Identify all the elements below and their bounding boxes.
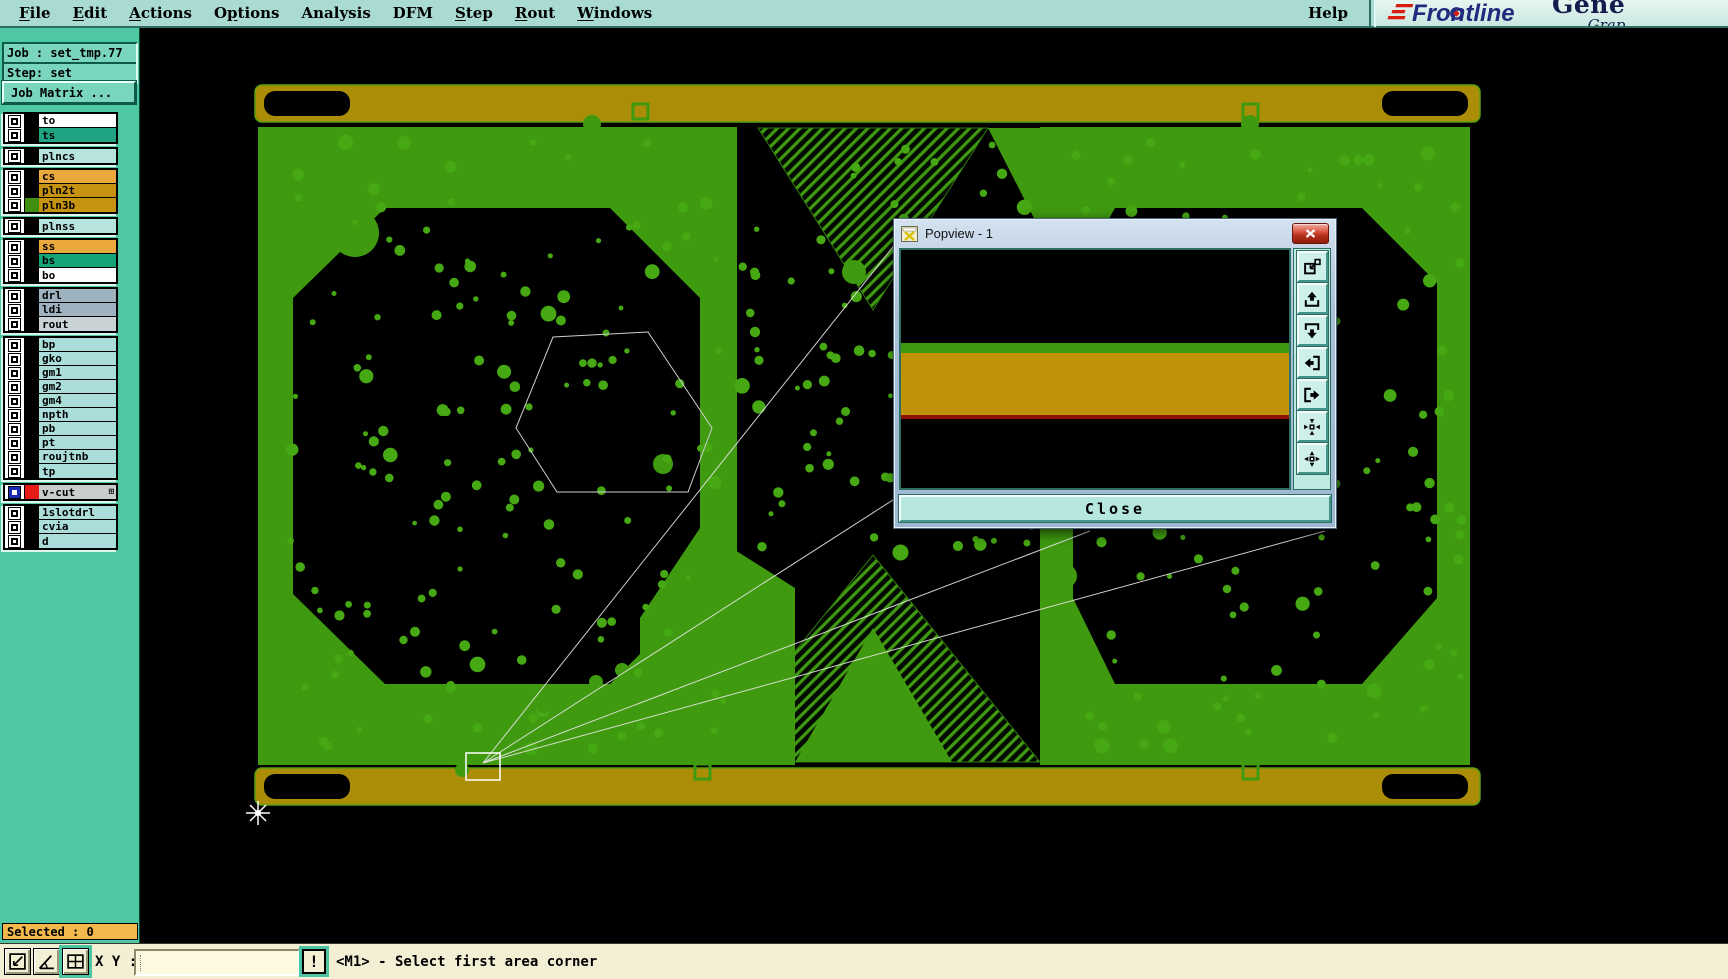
layer-label-pln2t[interactable]: pln2t: [39, 184, 116, 197]
xy-input[interactable]: [134, 949, 300, 976]
layer-label-pln3b[interactable]: pln3b: [39, 198, 116, 212]
layer-checkbox-ts[interactable]: [8, 129, 21, 142]
layer-row-body: tp: [24, 464, 116, 478]
layer-row-body: plnss: [24, 219, 116, 233]
layer-label-gm2[interactable]: gm2: [39, 380, 116, 393]
layer-expand-icon[interactable]: ⊞: [109, 488, 114, 497]
layer-row-body: ts: [24, 128, 116, 142]
layer-color-chip-bp[interactable]: [25, 338, 39, 351]
layer-row-bo: bo: [5, 268, 116, 282]
layer-checkbox-cell: [5, 366, 24, 380]
layer-label-plncs[interactable]: plncs: [39, 149, 116, 163]
popview-toolbar: [1293, 248, 1331, 490]
layer-row-drl: drl: [5, 289, 116, 303]
layer-checkbox-cell: [5, 268, 24, 282]
layer-checkbox-cell: [5, 520, 24, 534]
layer-row-body: d: [24, 534, 116, 548]
menu-item-actions[interactable]: Actions: [118, 4, 203, 22]
layer-row-body: pb: [24, 422, 116, 436]
layer-row-v-cut: v-cut⊞: [5, 485, 116, 499]
layer-color-chip-gm2[interactable]: [25, 380, 39, 393]
layer-label-tp[interactable]: tp: [39, 464, 116, 478]
layer-label-cvia[interactable]: cvia: [39, 520, 116, 533]
layer-checkbox-cell: [5, 338, 24, 352]
layer-checkbox-cell: [5, 436, 24, 450]
layer-checkbox-cell: [5, 317, 24, 331]
layer-row-cs: cs: [5, 170, 116, 184]
popview-band-gold: [901, 353, 1289, 415]
layer-checkbox-tp[interactable]: [8, 465, 21, 478]
layer-checkbox-1slotdrl[interactable]: [8, 507, 21, 520]
layer-checkbox-cell: [5, 128, 24, 142]
layer-checkbox-to[interactable]: [8, 115, 21, 128]
layer-checkbox-ss[interactable]: [8, 241, 21, 254]
layer-checkbox-npth[interactable]: [8, 409, 21, 422]
popview-window-icon: [901, 226, 918, 242]
layer-color-chip-ldi[interactable]: [25, 303, 39, 316]
layer-row-body: cs: [24, 170, 116, 184]
popview-title: Popview - 1: [925, 226, 993, 241]
layer-label-gm1[interactable]: gm1: [39, 366, 116, 379]
pan-up-icon: [1303, 290, 1321, 308]
layer-color-chip-v-cut[interactable]: [25, 485, 39, 499]
layer-checkbox-roujtnb[interactable]: [8, 451, 21, 464]
layer-checkbox-cell: [5, 394, 24, 408]
layer-label-npth[interactable]: npth: [39, 408, 116, 421]
layer-row-rout: rout: [5, 317, 116, 331]
layer-group: plnss: [3, 217, 118, 235]
layer-color-chip-to[interactable]: [25, 114, 39, 127]
layer-checkbox-cell: [5, 254, 24, 268]
layer-checkbox-pln2t[interactable]: [8, 185, 21, 198]
layer-label-v-cut[interactable]: v-cut⊞: [39, 485, 116, 499]
layer-checkbox-cvia[interactable]: [8, 521, 21, 534]
layer-checkbox-gm1[interactable]: [8, 367, 21, 380]
layer-checkbox-d[interactable]: [8, 535, 21, 548]
layer-checkbox-bs[interactable]: [8, 255, 21, 268]
layer-row-body: pln3b: [24, 198, 116, 212]
layer-row-gm1: gm1: [5, 366, 116, 380]
layer-checkbox-cell: [5, 408, 24, 422]
layer-group: cspln2tpln3b: [3, 168, 118, 214]
layer-checkbox-gm4[interactable]: [8, 395, 21, 408]
layer-label-gko[interactable]: gko: [39, 352, 116, 365]
layer-group: drlldirout: [3, 287, 118, 333]
brand-text: Frontline: [1412, 0, 1515, 26]
popview-band-green: [901, 343, 1289, 353]
area-select-icon: [8, 952, 27, 971]
layer-group: bpgkogm1gm2gm4npthpbptroujtnbtp: [3, 336, 118, 480]
close-x-icon: [1305, 229, 1316, 238]
layer-checkbox-cell: [5, 198, 24, 212]
layer-color-chip-1slotdrl[interactable]: [25, 506, 39, 519]
pan-down-icon: [1303, 322, 1321, 340]
grid-icon: [66, 952, 85, 971]
layer-checkbox-ldi[interactable]: [8, 304, 21, 317]
layer-label-d[interactable]: d: [39, 534, 116, 548]
layer-color-chip-roujtnb[interactable]: [25, 450, 39, 463]
layer-row-body: gm1: [24, 366, 116, 380]
layer-color-chip-tp[interactable]: [25, 464, 39, 478]
menu-item-options[interactable]: Options: [203, 4, 291, 22]
layer-checkbox-cell: [5, 380, 24, 394]
layer-checkbox-cell: [5, 464, 24, 478]
layer-row-bp: bp: [5, 338, 116, 352]
layer-checkbox-cs[interactable]: [8, 171, 21, 184]
layer-label-gm4[interactable]: gm4: [39, 394, 116, 407]
layer-checkbox-cell: [5, 506, 24, 520]
layer-row-body: cvia: [24, 520, 116, 534]
measure-angle-icon: [37, 952, 56, 971]
zoom-fit-icon: [1303, 450, 1321, 468]
layer-checkbox-pb[interactable]: [8, 423, 21, 436]
layer-row-body: bo: [24, 268, 116, 282]
layer-row-body: v-cut⊞: [24, 485, 116, 499]
layer-checkbox-bo[interactable]: [8, 269, 21, 282]
popview-dialog: Popview - 1 Close: [893, 218, 1337, 529]
menu-item-dfm[interactable]: DFM: [382, 4, 444, 22]
layer-row-pln2t: pln2t: [5, 184, 116, 198]
layer-color-chip-pb[interactable]: [25, 422, 39, 435]
layer-color-chip-plncs[interactable]: [25, 149, 39, 163]
layer-row-gko: gko: [5, 352, 116, 366]
job-info-box: Job : set_tmp.77 Step: set: [2, 42, 138, 84]
layer-label-drl[interactable]: drl: [39, 289, 116, 302]
layer-row-body: roujtnb: [24, 450, 116, 464]
pan-down-button[interactable]: [1297, 315, 1328, 346]
layer-checkbox-cell: [5, 170, 24, 184]
layer-row-pln3b: pln3b: [5, 198, 116, 212]
layer-row-1slotdrl: 1slotdrl: [5, 506, 116, 520]
layer-checkbox-plncs[interactable]: [8, 150, 21, 163]
layer-label-bo[interactable]: bo: [39, 268, 116, 282]
layer-label-bs[interactable]: bs: [39, 254, 116, 267]
layer-row-to: to: [5, 114, 116, 128]
layer-color-chip-cvia[interactable]: [25, 520, 39, 533]
menu-item-windows[interactable]: Windows: [566, 4, 663, 22]
layer-row-body: ldi: [24, 303, 116, 317]
layer-row-body: pt: [24, 436, 116, 450]
menu-item-file[interactable]: File: [8, 4, 62, 22]
layer-row-body: plncs: [24, 149, 116, 163]
popview-viewport[interactable]: [899, 248, 1291, 490]
layer-group: v-cut⊞: [3, 483, 118, 501]
layer-color-chip-cs[interactable]: [25, 170, 39, 183]
popview-close-x[interactable]: [1292, 223, 1329, 244]
layer-row-body: gko: [24, 352, 116, 366]
layer-row-body: drl: [24, 289, 116, 303]
grid-button[interactable]: [62, 948, 89, 975]
layer-label-to[interactable]: to: [39, 114, 116, 127]
layer-checkbox-gm2[interactable]: [8, 381, 21, 394]
step-label: Step: set: [4, 64, 136, 82]
selected-count: Selected : 0: [2, 923, 138, 940]
layer-checkbox-cell: [5, 289, 24, 303]
popview-band-red: [901, 415, 1289, 419]
layer-checkbox-bp[interactable]: [8, 339, 21, 352]
logo-caption: Gene Grap: [1552, 0, 1625, 26]
layer-row-body: pln2t: [24, 184, 116, 198]
layer-checkbox-drl[interactable]: [8, 290, 21, 303]
layer-color-chip-bs[interactable]: [25, 254, 39, 267]
frontline-logo: Frontline Gene Grap: [1376, 0, 1728, 26]
text-caret: [140, 955, 142, 971]
layer-row-body: bs: [24, 254, 116, 268]
layer-row-tp: tp: [5, 464, 116, 478]
menu-bar: FileEditActionsOptionsAnalysisDFMStepRou…: [0, 0, 1728, 28]
layer-checkbox-v-cut[interactable]: [8, 486, 21, 499]
layer-row-plnss: plnss: [5, 219, 116, 233]
layer-color-chip-pln3b[interactable]: [25, 198, 39, 212]
layer-checkbox-plnss[interactable]: [8, 220, 21, 233]
menu-item-analysis[interactable]: Analysis: [291, 4, 382, 22]
layer-checkbox-pt[interactable]: [8, 437, 21, 450]
layer-group: plncs: [3, 147, 118, 165]
open-new-popview-icon: [1303, 258, 1321, 276]
layer-row-ss: ss: [5, 240, 116, 254]
layer-row-body: gm4: [24, 394, 116, 408]
menu-item-help[interactable]: Help: [1297, 4, 1359, 22]
pan-left-button[interactable]: [1297, 347, 1328, 378]
layer-group: tots: [3, 112, 118, 144]
layer-row-ts: ts: [5, 128, 116, 142]
status-bar: X Y : ! <M1> - Select first area corner: [0, 943, 1728, 979]
layer-row-roujtnb: roujtnb: [5, 450, 116, 464]
area-select-button[interactable]: [4, 948, 31, 975]
layer-color-chip-npth[interactable]: [25, 408, 39, 421]
layer-color-chip-pln2t[interactable]: [25, 184, 39, 197]
layer-row-gm2: gm2: [5, 380, 116, 394]
layer-label-rout[interactable]: rout: [39, 317, 116, 331]
popview-close-button[interactable]: Close: [899, 495, 1331, 522]
layer-checkbox-gko[interactable]: [8, 353, 21, 366]
menu-item-edit[interactable]: Edit: [62, 4, 119, 22]
layer-row-body: 1slotdrl: [24, 506, 116, 520]
layer-checkbox-cell: [5, 149, 24, 163]
pan-left-icon: [1303, 354, 1321, 372]
layer-label-ldi[interactable]: ldi: [39, 303, 116, 316]
zoom-fit-button[interactable]: [1297, 443, 1328, 474]
layer-color-chip-plnss[interactable]: [25, 219, 39, 233]
layer-label-pb[interactable]: pb: [39, 422, 116, 435]
layer-checkbox-pln3b[interactable]: [8, 199, 21, 212]
layer-color-chip-ts[interactable]: [25, 128, 39, 142]
prompt-message: <M1> - Select first area corner: [336, 954, 597, 970]
layer-checkbox-cell: [5, 485, 24, 499]
layer-checkbox-rout[interactable]: [8, 318, 21, 331]
layer-row-body: to: [24, 114, 116, 128]
layer-row-npth: npth: [5, 408, 116, 422]
open-new-popview-button[interactable]: [1297, 251, 1328, 282]
menu-right: Help Frontline Gene Grap: [1297, 0, 1728, 26]
layer-row-body: gm2: [24, 380, 116, 394]
layer-color-chip-gm1[interactable]: [25, 366, 39, 379]
layer-label-cs[interactable]: cs: [39, 170, 116, 183]
layer-list: totsplncscspln2tpln3bplnssssbsbodrlldiro…: [3, 112, 118, 553]
layer-color-chip-gm4[interactable]: [25, 394, 39, 407]
layer-label-ss[interactable]: ss: [39, 240, 116, 253]
layer-group: 1slotdrlcviad: [3, 504, 118, 550]
layer-row-body: bp: [24, 338, 116, 352]
layer-label-1slotdrl[interactable]: 1slotdrl: [39, 506, 116, 519]
layer-checkbox-cell: [5, 184, 24, 198]
measure-angle-button[interactable]: [33, 948, 60, 975]
popview-titlebar[interactable]: Popview - 1: [899, 219, 1331, 248]
layer-color-chip-gko[interactable]: [25, 352, 39, 365]
layer-row-bs: bs: [5, 254, 116, 268]
zoom-center-icon: [1303, 418, 1321, 436]
layer-color-chip-bo[interactable]: [25, 268, 39, 282]
popview-body: [899, 248, 1331, 490]
logo-caption-bottom: Grap: [1552, 18, 1625, 26]
layer-row-pb: pb: [5, 422, 116, 436]
layer-checkbox-cell: [5, 450, 24, 464]
layer-group: ssbsbo: [3, 238, 118, 284]
zoom-center-button[interactable]: [1297, 411, 1328, 442]
layer-row-body: rout: [24, 317, 116, 331]
layer-row-plncs: plncs: [5, 149, 116, 163]
menu-items: FileEditActionsOptionsAnalysisDFMStepRou…: [0, 4, 663, 22]
pan-right-icon: [1303, 386, 1321, 404]
job-matrix-button[interactable]: Job Matrix ...: [2, 81, 136, 104]
menu-item-step[interactable]: Step: [444, 4, 504, 22]
layer-row-pt: pt: [5, 436, 116, 450]
pcb-canvas[interactable]: Popview - 1 Close: [140, 28, 1728, 943]
menu-item-rout[interactable]: Rout: [504, 4, 566, 22]
layer-color-chip-drl[interactable]: [25, 289, 39, 302]
sidebar: Job : set_tmp.77 Step: set Job Matrix ..…: [0, 28, 140, 943]
menu-separator: [1369, 0, 1376, 27]
pan-right-button[interactable]: [1297, 379, 1328, 410]
layer-row-body: ss: [24, 240, 116, 254]
layer-checkbox-cell: [5, 114, 24, 128]
layer-row-ldi: ldi: [5, 303, 116, 317]
layer-label-bp[interactable]: bp: [39, 338, 116, 351]
layer-checkbox-cell: [5, 219, 24, 233]
layer-checkbox-cell: [5, 240, 24, 254]
layer-label-plnss[interactable]: plnss: [39, 219, 116, 233]
job-label: Job : set_tmp.77: [4, 44, 136, 64]
layer-label-ts[interactable]: ts: [39, 128, 116, 142]
layer-color-chip-pt[interactable]: [25, 436, 39, 449]
layer-color-chip-ss[interactable]: [25, 240, 39, 253]
layer-checkbox-cell: [5, 303, 24, 317]
xy-label: X Y :: [95, 954, 137, 970]
layer-color-chip-rout[interactable]: [25, 317, 39, 331]
pan-up-button[interactable]: [1297, 283, 1328, 314]
layer-color-chip-d[interactable]: [25, 534, 39, 548]
layer-row-d: d: [5, 534, 116, 548]
layer-checkbox-cell: [5, 352, 24, 366]
layer-row-gm4: gm4: [5, 394, 116, 408]
layer-row-body: npth: [24, 408, 116, 422]
layer-row-cvia: cvia: [5, 520, 116, 534]
layer-checkbox-cell: [5, 422, 24, 436]
layer-checkbox-cell: [5, 534, 24, 548]
layer-label-pt[interactable]: pt: [39, 436, 116, 449]
frontline-logo-mark: Frontline: [1386, 0, 1544, 26]
layer-label-roujtnb[interactable]: roujtnb: [39, 450, 116, 463]
alert-button[interactable]: !: [302, 949, 326, 974]
